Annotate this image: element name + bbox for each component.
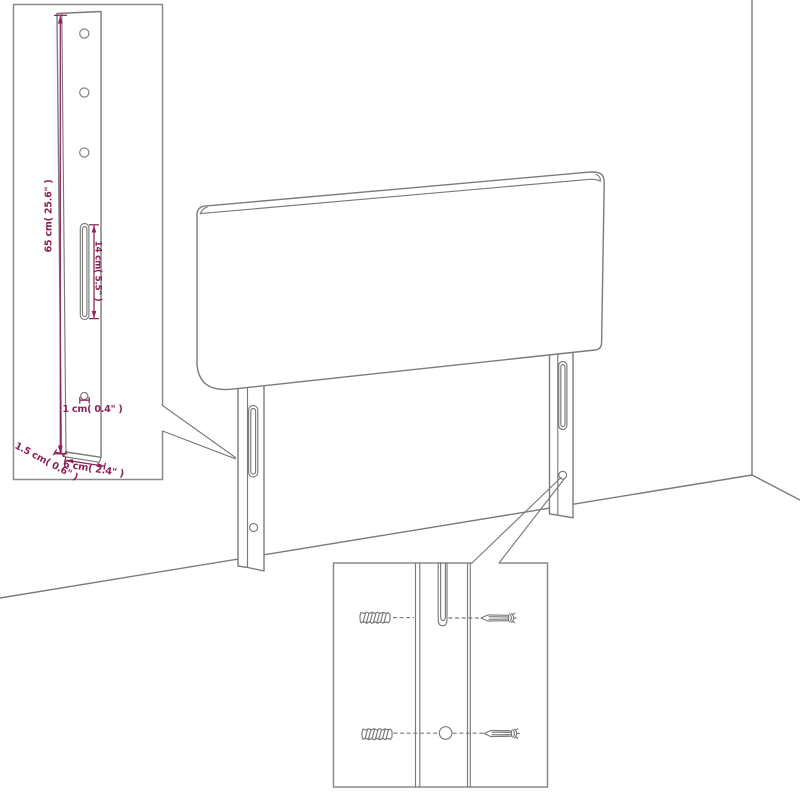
floor-line-right — [752, 475, 800, 500]
section-slot-inner — [441, 563, 446, 621]
left-leg — [238, 374, 264, 572]
post-hole-2 — [80, 88, 89, 97]
floor-line-left — [0, 475, 752, 598]
post-slot — [80, 224, 89, 320]
leg-section — [416, 563, 471, 787]
right-leg — [550, 336, 574, 518]
post-anchor-hole — [81, 392, 88, 399]
left-leg-slot — [249, 406, 258, 478]
callout-line-left — [472, 478, 561, 564]
dimension-label-slot-length: 14 cm( 5.5" ) — [93, 241, 103, 302]
assembly-diagram: 65 cm( 25.6" ) 14 cm( 5.5" ) 1 cm( 0.4" … — [0, 0, 800, 800]
dimension-label-height: 65 cm( 25.6" ) — [44, 180, 55, 253]
section-hole — [439, 727, 452, 740]
left-leg-hole — [250, 524, 258, 532]
dimension-label-hole-diameter: 1 cm( 0.4" ) — [62, 404, 122, 415]
wall-anchor-icon — [362, 729, 392, 740]
screw-icon — [481, 613, 516, 623]
dimension-annotations: 65 cm( 25.6" ) 14 cm( 5.5" ) 1 cm( 0.4" … — [13, 15, 125, 483]
headboard-outline — [197, 172, 604, 390]
diagram-canvas: 65 cm( 25.6" ) 14 cm( 5.5" ) 1 cm( 0.4" … — [0, 0, 800, 800]
callout-line-right — [499, 480, 564, 564]
wall-anchor-icon — [360, 612, 390, 623]
callout-line-upper — [163, 406, 236, 458]
right-leg-slot — [559, 362, 567, 430]
headboard-panel — [197, 172, 604, 390]
dimension-hole-diameter: 1 cm( 0.4" ) — [62, 397, 122, 415]
post-hole-1 — [80, 29, 89, 38]
callout-line-lower — [163, 431, 236, 459]
post-hole-3 — [80, 148, 89, 157]
screw-icon — [484, 729, 519, 739]
